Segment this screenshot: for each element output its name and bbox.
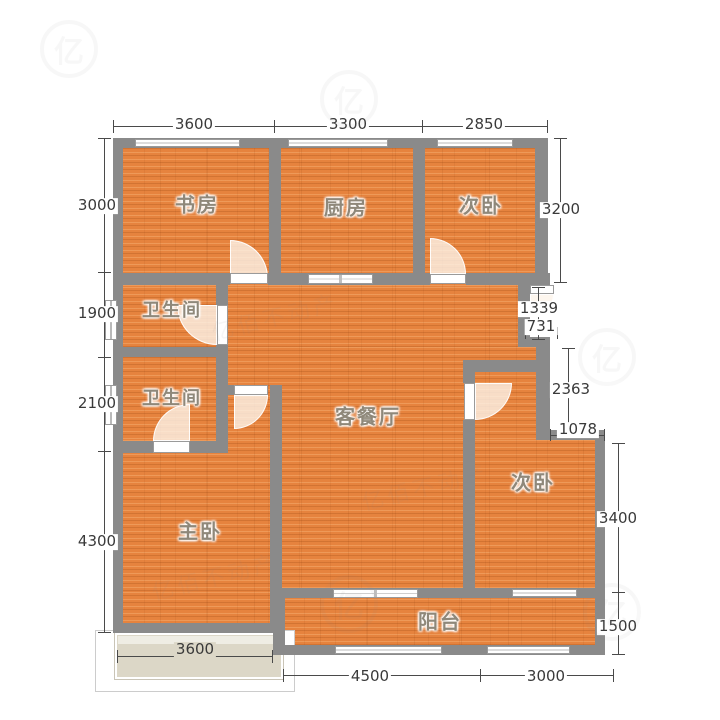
- dim-tick: [274, 120, 275, 133]
- room-label-balcony: 阳台: [418, 606, 462, 635]
- dim-label-right-1078: 1078: [557, 422, 599, 438]
- sliding-door-kitchen: [308, 274, 373, 284]
- window-balcony-2: [487, 646, 570, 654]
- watermark-logo-icon: 亿: [320, 70, 378, 128]
- wall-bath1-bottom: [113, 347, 228, 357]
- room-label-living-dining: 客餐厅: [335, 401, 401, 430]
- room-label-kitchen: 厨房: [324, 192, 368, 221]
- wall-balcony-left: [273, 588, 285, 655]
- watermark-logo-icon: 亿: [578, 328, 636, 386]
- dim-label-top-2850: 2850: [463, 117, 505, 133]
- dim-tick: [532, 287, 545, 288]
- dim-tick: [98, 272, 111, 273]
- dim-label-right-1339: 1339: [518, 301, 560, 317]
- dim-label-right-2363: 2363: [550, 382, 592, 398]
- dim-tick: [113, 120, 114, 133]
- window-bedroom-top: [437, 139, 513, 147]
- dim-tick: [550, 429, 551, 441]
- wall-bath-right-upper: [216, 285, 228, 307]
- dim-tick: [554, 138, 567, 139]
- dim-tick: [554, 282, 567, 283]
- dim-tick: [98, 357, 111, 358]
- dim-tick: [98, 138, 111, 139]
- dim-tick: [612, 443, 625, 444]
- window-bedroom-right: [512, 589, 577, 597]
- dim-tick: [532, 339, 545, 340]
- dim-label-left-4300: 4300: [76, 534, 118, 550]
- dim-label-right-3400: 3400: [597, 511, 639, 527]
- wall-study-bottom: [113, 273, 230, 285]
- wall-bath-right-lower: [216, 345, 228, 443]
- wall-master-bottom: [113, 623, 285, 633]
- watermark-logo-icon: 亿: [583, 583, 641, 641]
- dim-tick: [422, 120, 423, 133]
- dim-tick: [98, 632, 111, 633]
- dim-label-right-3200: 3200: [540, 202, 582, 218]
- dim-tick: [283, 669, 284, 682]
- floor-plan-canvas: 3600 3300 2850 3000 1900 2100 4300 3200 …: [0, 0, 720, 720]
- dim-tick: [117, 650, 118, 663]
- dim-label-right-731: 731: [525, 319, 558, 335]
- dim-label-left-2100: 2100: [76, 396, 118, 412]
- dim-tick: [272, 650, 273, 663]
- dim-tick: [562, 348, 575, 349]
- door-leaf-bedroom-top: [430, 274, 466, 284]
- room-label-bedroom-top: 次卧: [459, 190, 503, 219]
- window-balcony-1: [335, 646, 442, 654]
- wall-study-kitchen: [269, 148, 281, 273]
- wall-living-bedroomright-lower: [463, 420, 475, 598]
- room-label-study: 书房: [175, 189, 219, 218]
- dim-tick: [480, 669, 481, 682]
- watermark-logo-icon: 亿: [320, 575, 378, 633]
- dim-tick: [613, 669, 614, 682]
- window-kitchen: [288, 139, 388, 147]
- dim-label-bottom-4500: 4500: [349, 669, 391, 685]
- door-leaf-study: [230, 273, 268, 284]
- room-label-bedroom-right: 次卧: [511, 467, 555, 496]
- dim-tick: [547, 120, 548, 133]
- window-study: [135, 139, 240, 147]
- room-label-bathroom-2: 卫生间: [142, 384, 202, 410]
- dim-label-top-3600: 3600: [173, 117, 215, 133]
- dim-label-bottom-3000: 3000: [525, 669, 567, 685]
- door-leaf-bathroom-2: [153, 441, 190, 453]
- wall-living-step: [463, 360, 545, 372]
- door-leaf-bedroom-right: [464, 383, 475, 420]
- watermark-logo-icon: 亿: [40, 20, 98, 78]
- dim-tick: [98, 451, 111, 452]
- dim-label-left-1900: 1900: [76, 306, 118, 322]
- door-leaf-master: [234, 385, 268, 395]
- wall-corridor-right-exterior: [536, 337, 550, 440]
- room-label-master-bedroom: 主卧: [178, 516, 222, 545]
- wall-kitchen-bedroom: [413, 148, 425, 273]
- dim-tick: [604, 429, 605, 441]
- wall-living-bedroomright-upper: [463, 360, 475, 383]
- room-label-bathroom-1: 卫生间: [142, 296, 202, 322]
- dim-label-left-3000: 3000: [76, 198, 118, 214]
- dim-label-bay-3600: 3600: [174, 642, 216, 658]
- dim-tick: [612, 654, 625, 655]
